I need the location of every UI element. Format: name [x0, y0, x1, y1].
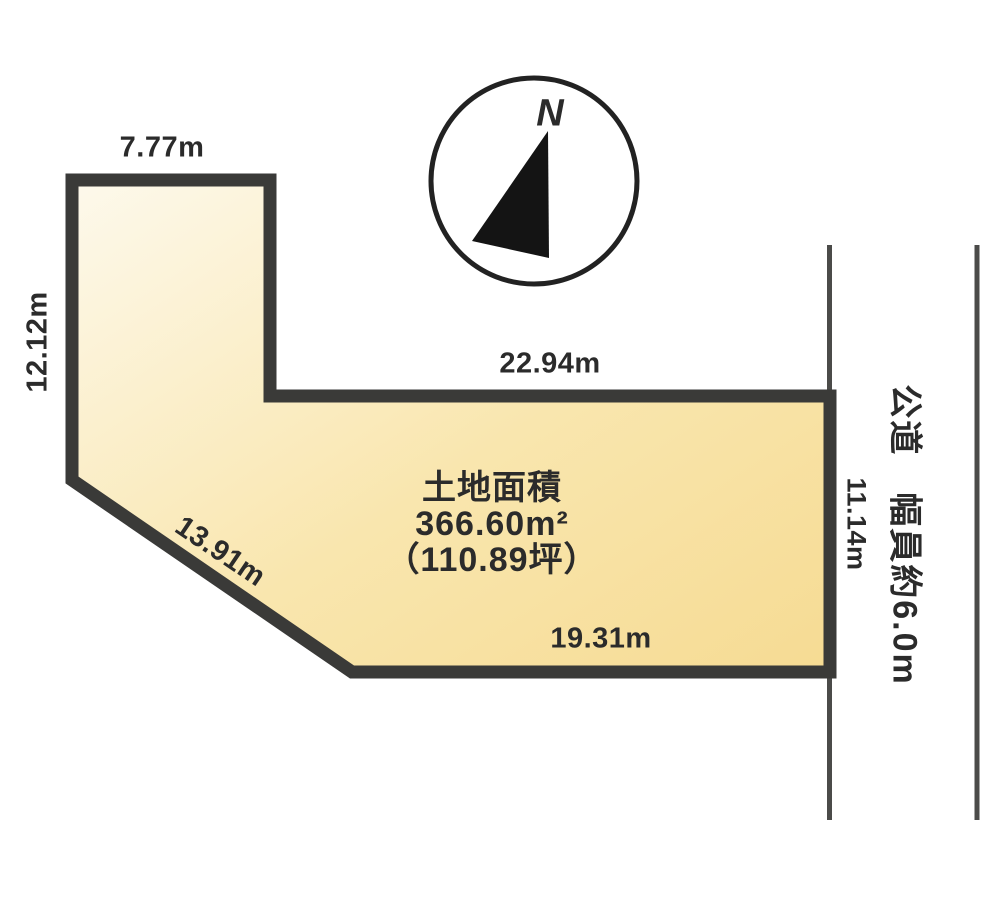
area-title: 土地面積 [385, 470, 598, 506]
dimension-left-edge: 12.12m [22, 291, 55, 392]
dimension-upper-inner-edge: 22.94m [499, 348, 600, 381]
road-label: 公道 幅員約6.0m [884, 384, 933, 686]
area-tsubo: （110.89坪） [385, 542, 598, 578]
dimension-top-edge: 7.77m [120, 132, 205, 165]
dimension-bottom-edge: 19.31m [550, 623, 651, 656]
plot-outline [72, 180, 830, 672]
land-plot-diagram: N 7.77m 12.12m 22.94m 13.91m 19.31m 11.1… [0, 0, 1000, 922]
area-annotation: 土地面積 366.60m² （110.89坪） [385, 470, 598, 578]
compass-north-label: N [536, 93, 563, 136]
dimension-right-edge: 11.14m [841, 477, 872, 570]
area-value: 366.60m² [385, 506, 598, 542]
